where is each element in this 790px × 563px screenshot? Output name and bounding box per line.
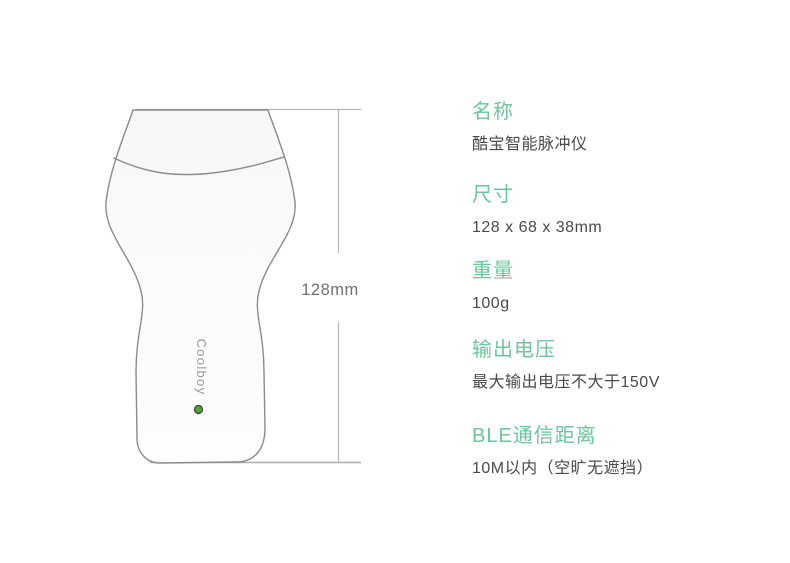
device-drawing-svg: 128mm Coolboy <box>0 0 420 563</box>
spec-value: 酷宝智能脉冲仪 <box>472 134 772 155</box>
spec-item-output-voltage: 输出电压 最大输出电压不大于150V <box>472 337 772 393</box>
dimension-label: 128mm <box>301 281 359 299</box>
spec-label: 尺寸 <box>472 182 772 209</box>
led-indicator-dot <box>195 406 203 414</box>
spec-item-ble-range: BLE通信距离 10M以内（空旷无遮挡） <box>472 423 772 479</box>
spec-label: 重量 <box>472 258 772 285</box>
brand-label: Coolboy <box>194 339 209 396</box>
spec-value: 128 x 68 x 38mm <box>472 217 772 238</box>
spec-value: 10M以内（空旷无遮挡） <box>472 458 772 479</box>
product-spec-page: 128mm Coolboy 名称 酷宝智能脉冲仪 尺寸 128 x 68 x 3… <box>0 0 790 563</box>
spec-item-size: 尺寸 128 x 68 x 38mm <box>472 182 772 238</box>
spec-item-weight: 重量 100g <box>472 258 772 314</box>
product-diagram: 128mm Coolboy <box>0 0 420 563</box>
spec-label: BLE通信距离 <box>472 423 772 450</box>
spec-item-name: 名称 酷宝智能脉冲仪 <box>472 99 772 155</box>
spec-value: 最大输出电压不大于150V <box>472 372 772 393</box>
spec-label: 名称 <box>472 99 772 126</box>
spec-label: 输出电压 <box>472 337 772 364</box>
spec-value: 100g <box>472 293 772 314</box>
